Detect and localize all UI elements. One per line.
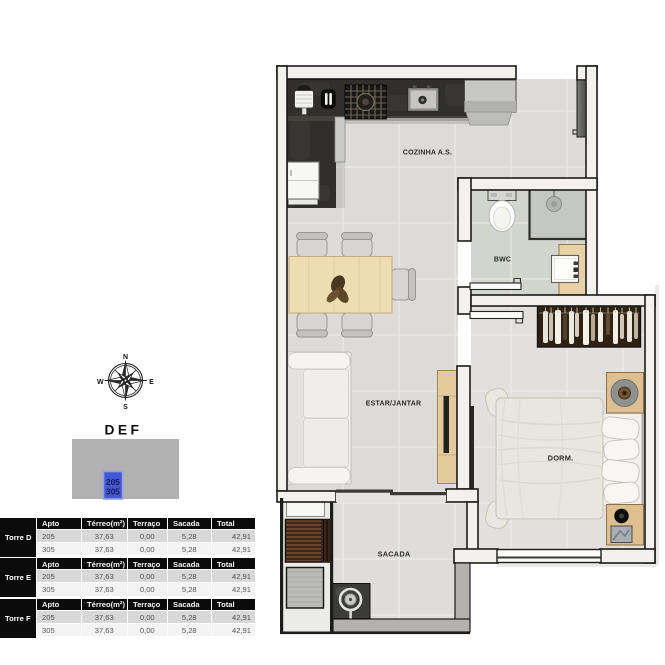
svg-text:DEF: DEF — [105, 423, 143, 438]
svg-text:W: W — [97, 379, 104, 386]
svg-text:ESTAR/JANTAR: ESTAR/JANTAR — [366, 401, 421, 408]
svg-text:BWC: BWC — [494, 257, 511, 264]
svg-text:COZINHA A.S.: COZINHA A.S. — [403, 150, 452, 157]
svg-text:DORM.: DORM. — [548, 454, 574, 463]
svg-text:305: 305 — [106, 488, 120, 497]
svg-text:S: S — [123, 404, 128, 411]
svg-text:205: 205 — [106, 478, 120, 487]
svg-text:E: E — [149, 379, 154, 386]
svg-text:N: N — [123, 354, 128, 361]
svg-text:SACADA: SACADA — [378, 550, 411, 559]
